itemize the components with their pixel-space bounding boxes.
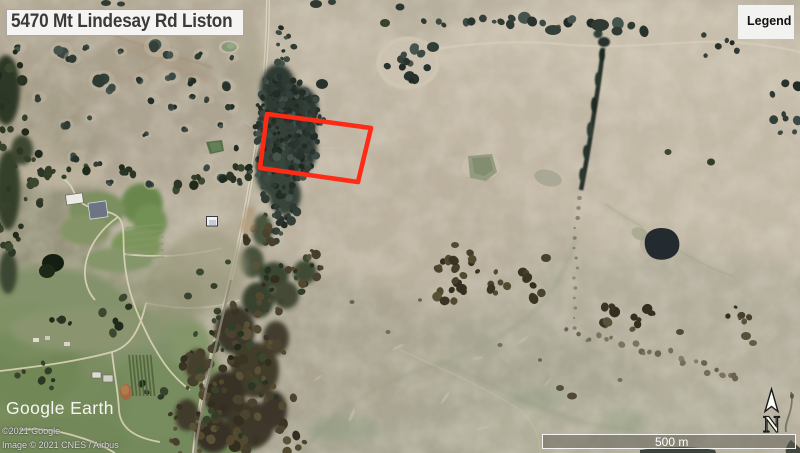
svg-text:N: N xyxy=(763,412,780,437)
